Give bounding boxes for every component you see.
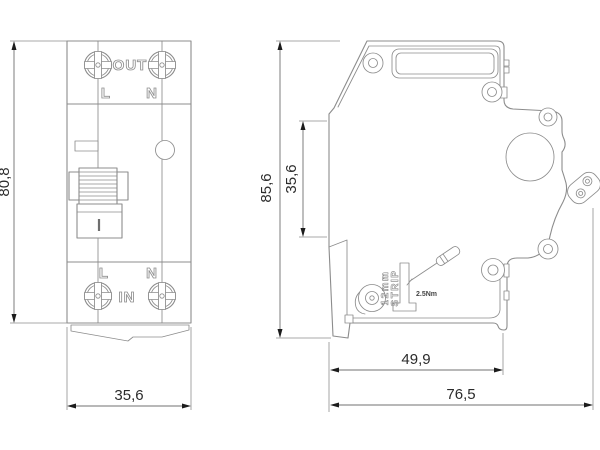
dim-side-depth-body-value: 49,9 xyxy=(401,351,430,368)
screw-out-n-icon xyxy=(149,52,176,79)
torque-marking: 2.5Nm xyxy=(416,291,437,298)
label-in: IN xyxy=(119,289,136,306)
recess-notch-2 xyxy=(504,291,509,300)
dimension-side-depth-body: 49,9 xyxy=(329,333,503,412)
front-view-drawing: OUT L N L N IN 80,8 35,6 xyxy=(0,41,191,410)
label-window xyxy=(392,49,498,78)
label-n-bottom: N xyxy=(146,265,158,282)
dimension-front-height: 80,8 xyxy=(0,41,67,323)
dim-front-width-value: 35,6 xyxy=(114,387,143,404)
dimension-side-height-front: 35,6 xyxy=(283,121,327,237)
dim-side-height-front-value: 35,6 xyxy=(283,164,300,193)
side-view-drawing: 12mm STRIP 2.5Nm 85,6 35,6 49,9 xyxy=(258,41,600,412)
screw-out-l-icon xyxy=(85,52,112,79)
label-l-bottom: L xyxy=(99,265,109,282)
bottom-clip-cap xyxy=(71,325,189,341)
solenoid-circle xyxy=(506,133,554,181)
screw-in-l-icon xyxy=(85,283,112,310)
dim-side-height-overall-value: 85,6 xyxy=(258,173,275,202)
label-out: OUT xyxy=(113,57,148,74)
foot-step xyxy=(345,315,353,323)
technical-drawing-page: OUT L N L N IN 80,8 35,6 xyxy=(0,0,600,450)
label-l-top: L xyxy=(101,85,111,102)
drawing-canvas: OUT L N L N IN 80,8 35,6 xyxy=(0,0,600,450)
screw-in-n-icon xyxy=(149,283,176,310)
label-n-top: N xyxy=(146,85,158,102)
indicator-window xyxy=(156,141,175,160)
test-button-tab xyxy=(75,141,98,151)
dim-front-height-value: 80,8 xyxy=(0,167,13,196)
strip-marking-line2: STRIP xyxy=(390,270,401,307)
edge-nub-1 xyxy=(504,60,509,66)
dim-side-depth-overall-value: 76,5 xyxy=(446,386,475,403)
din-clip-pad xyxy=(564,169,600,208)
edge-nub-2 xyxy=(504,67,509,73)
